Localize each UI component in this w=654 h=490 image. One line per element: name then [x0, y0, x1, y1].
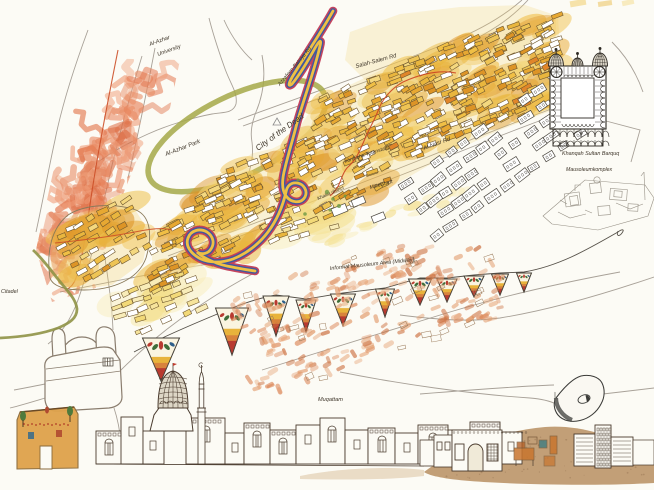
svg-text:Muqattam: Muqattam	[318, 397, 343, 403]
svg-text:Citadel: Citadel	[1, 289, 19, 295]
svg-text:Mausoleumkomplex: Mausoleumkomplex	[566, 167, 613, 173]
svg-text:Khanqah Sultan Barquq: Khanqah Sultan Barquq	[562, 151, 619, 157]
